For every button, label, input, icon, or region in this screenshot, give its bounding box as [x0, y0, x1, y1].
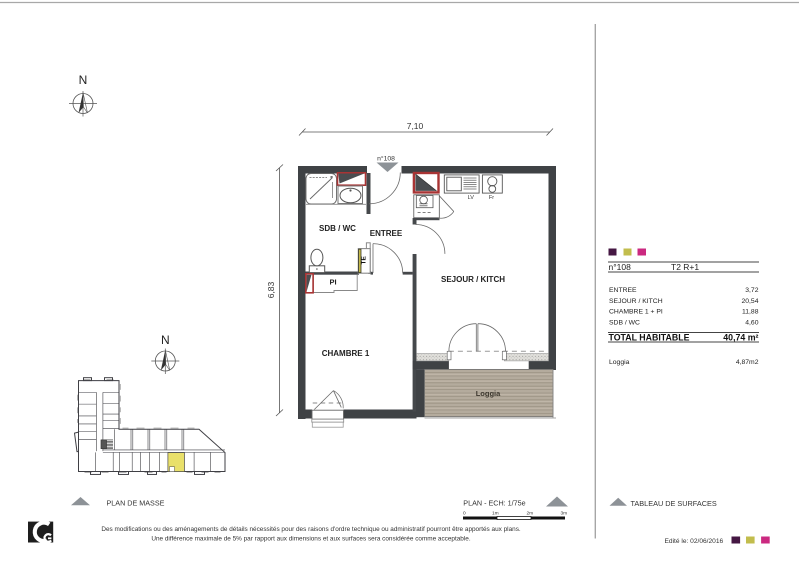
svg-text:Loggia: Loggia: [609, 359, 630, 366]
svg-text:CHAMBRE 1: CHAMBRE 1: [322, 349, 370, 358]
svg-text:3m: 3m: [561, 511, 568, 517]
svg-text:0: 0: [463, 511, 466, 517]
svg-text:1m: 1m: [492, 511, 499, 517]
svg-text:4,87m2: 4,87m2: [736, 359, 759, 366]
svg-text:PI: PI: [329, 278, 336, 287]
svg-text:40,74 m²: 40,74 m²: [723, 333, 758, 343]
svg-text:N: N: [79, 73, 88, 87]
svg-text:6,83: 6,83: [266, 281, 276, 298]
svg-text:CHAMBRE 1 + PI: CHAMBRE 1 + PI: [609, 309, 663, 316]
svg-text:SEJOUR / KITCH: SEJOUR / KITCH: [609, 298, 663, 305]
svg-text:N: N: [161, 333, 170, 347]
svg-text:7,10: 7,10: [407, 121, 424, 131]
svg-text:20,54: 20,54: [741, 298, 758, 305]
svg-text:ENTREE: ENTREE: [609, 287, 637, 294]
svg-text:SDB / WC: SDB / WC: [609, 319, 640, 326]
svg-text:PLAN DE MASSE: PLAN DE MASSE: [107, 499, 165, 508]
svg-text:2m: 2m: [527, 511, 534, 517]
svg-text:n°108: n°108: [609, 262, 632, 272]
svg-text:11,88: 11,88: [742, 309, 759, 316]
svg-text:PLAN - ECH: 1/75e: PLAN - ECH: 1/75e: [463, 499, 525, 508]
svg-text:TOTAL HABITABLE: TOTAL HABITABLE: [609, 333, 690, 343]
svg-text:Des modifications ou des aména: Des modifications ou des aménagements de…: [101, 526, 521, 533]
svg-text:ENTREE: ENTREE: [370, 229, 403, 238]
svg-text:SEJOUR / KITCH: SEJOUR / KITCH: [441, 275, 505, 284]
svg-text:n°108: n°108: [377, 155, 395, 163]
svg-text:TABLEAU DE SURFACES: TABLEAU DE SURFACES: [631, 499, 717, 508]
svg-text:T2 R+1: T2 R+1: [671, 262, 699, 272]
svg-text:Loggia: Loggia: [476, 389, 501, 398]
svg-text:3,72: 3,72: [745, 287, 758, 294]
svg-text:SDB / WC: SDB / WC: [319, 224, 356, 233]
svg-text:LV: LV: [468, 195, 475, 201]
svg-text:Edité le: 02/06/2016: Edité le: 02/06/2016: [665, 538, 724, 545]
svg-text:Fr: Fr: [489, 195, 494, 201]
svg-text:4,60: 4,60: [745, 319, 758, 326]
svg-text:Une différence maximale de 5%: Une différence maximale de 5% par rappor…: [151, 536, 470, 543]
svg-text:TE: TE: [361, 255, 368, 264]
